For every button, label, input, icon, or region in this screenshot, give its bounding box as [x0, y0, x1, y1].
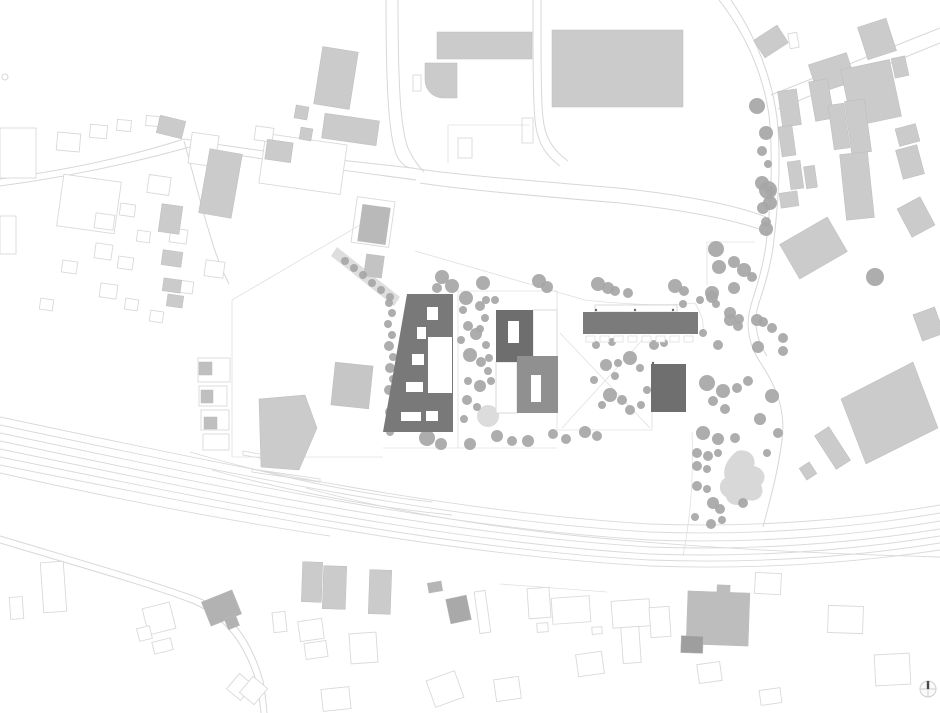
site-marker-dot: [672, 309, 674, 311]
tree: [617, 395, 627, 405]
tree: [377, 286, 385, 294]
tree: [749, 98, 765, 114]
roof-opening: [401, 412, 421, 421]
tree: [692, 448, 702, 458]
tree: [643, 386, 651, 394]
roof-opening: [426, 411, 438, 421]
context-building-outline: [537, 623, 549, 633]
context-building: [358, 204, 391, 245]
tree: [757, 202, 769, 214]
tree: [636, 364, 644, 372]
tree: [341, 257, 349, 265]
tree: [419, 430, 435, 446]
context-building-outline: [117, 119, 132, 131]
tree: [705, 286, 719, 300]
tree: [757, 146, 767, 156]
tree: [778, 346, 788, 356]
tree: [484, 367, 492, 375]
context-building-outline: [117, 256, 134, 270]
context-building: [166, 294, 184, 308]
tree: [432, 283, 442, 293]
tree: [696, 426, 710, 440]
context-building-outline: [94, 213, 115, 230]
site-marker-dot: [652, 362, 654, 364]
context-building-outline: [621, 626, 641, 663]
balcony-outline: [656, 336, 665, 342]
tree: [457, 336, 465, 344]
tree: [761, 217, 771, 227]
context-building: [437, 32, 532, 59]
tree: [481, 314, 489, 322]
site-plan: [0, 0, 940, 713]
tree: [482, 296, 490, 304]
context-building-outline: [56, 132, 80, 152]
tree: [679, 286, 689, 296]
tree: [778, 333, 788, 343]
context-building-outline: [203, 434, 229, 450]
context-building-outline: [147, 175, 171, 196]
context-building-outline: [149, 310, 163, 323]
context-building-outline: [304, 641, 328, 660]
tree: [773, 428, 783, 438]
tree: [623, 288, 633, 298]
tree: [692, 481, 702, 491]
tree: [579, 426, 591, 438]
tree: [592, 431, 602, 441]
context-building-outline: [494, 676, 522, 701]
context-building-outline: [61, 260, 78, 274]
project-building-east-bar: [583, 312, 698, 334]
tree: [703, 465, 711, 473]
context-building-outline: [611, 599, 651, 629]
context-building-outline: [649, 606, 671, 637]
tree: [541, 281, 553, 293]
tree: [699, 329, 707, 337]
context-building: [322, 566, 346, 610]
tree: [720, 404, 730, 414]
balcony-outline: [642, 336, 651, 342]
tree: [384, 320, 392, 328]
context-building: [204, 417, 217, 429]
context-building: [301, 562, 322, 603]
context-building: [158, 204, 183, 235]
tree: [733, 321, 743, 331]
tree: [463, 348, 477, 362]
tree: [473, 403, 481, 411]
balcony-outline: [586, 336, 595, 342]
tree: [747, 272, 757, 282]
tree: [470, 328, 482, 340]
context-building-outline: [527, 587, 551, 618]
canopy-outline: [595, 305, 677, 312]
tree: [491, 296, 499, 304]
context-building-outline: [788, 32, 799, 48]
tree: [765, 186, 775, 196]
context-building: [717, 585, 730, 594]
balcony-outline: [600, 336, 609, 342]
tree: [611, 372, 619, 380]
tree: [598, 401, 606, 409]
tree: [623, 351, 637, 365]
tree: [603, 388, 617, 402]
tree: [712, 433, 724, 445]
tree: [716, 384, 730, 398]
project-south-wing-outline: [496, 362, 517, 413]
tree: [718, 516, 726, 524]
roof-opening: [412, 354, 424, 365]
tree: [764, 160, 772, 168]
context-building: [201, 390, 213, 403]
context-building-outline: [349, 632, 378, 664]
tree: [703, 451, 713, 461]
context-building-outline: [99, 283, 118, 299]
tree: [476, 357, 486, 367]
tree: [368, 279, 376, 287]
site-marker-dot: [634, 309, 636, 311]
tree: [765, 389, 779, 403]
context-building-outline: [9, 597, 24, 620]
courtyard-opening: [508, 321, 519, 343]
balcony-outline: [670, 336, 679, 342]
tree: [385, 299, 393, 307]
tree: [754, 413, 766, 425]
tree: [708, 396, 718, 406]
context-building-outline: [94, 243, 113, 260]
tree: [482, 341, 490, 349]
tree: [464, 438, 476, 450]
tree: [435, 438, 447, 450]
context-building-outline: [40, 561, 66, 612]
tree: [712, 260, 726, 274]
site-marker-dot: [595, 309, 597, 311]
tree: [763, 449, 771, 457]
tree: [561, 434, 571, 444]
tree: [728, 282, 740, 294]
tree: [350, 264, 358, 272]
context-building: [294, 105, 309, 120]
roof-opening: [427, 307, 438, 320]
tree: [384, 341, 394, 351]
tree: [491, 430, 503, 442]
tree: [476, 276, 490, 290]
balcony-outline: [614, 336, 623, 342]
tree: [610, 286, 620, 296]
tree: [637, 401, 645, 409]
tree: [445, 279, 459, 293]
context-building-outline: [204, 260, 225, 278]
tree: [388, 331, 396, 339]
context-building-outline: [874, 653, 911, 686]
tree: [866, 268, 884, 286]
tree: [600, 359, 612, 371]
context-building-outline: [458, 138, 472, 158]
tree: [507, 436, 517, 446]
context-building: [199, 362, 212, 375]
context-building-outline: [89, 124, 107, 138]
tree: [590, 376, 598, 384]
tree: [625, 405, 635, 415]
tree: [714, 449, 722, 457]
tree: [715, 504, 725, 514]
context-building: [265, 139, 294, 162]
context-building-outline: [413, 75, 421, 91]
tree: [459, 306, 467, 314]
balcony-outline: [628, 336, 637, 342]
tree: [460, 415, 468, 423]
context-building: [427, 581, 443, 593]
tree: [692, 461, 702, 471]
courtyard-opening: [531, 375, 541, 402]
context-building-outline: [119, 203, 136, 217]
tree: [464, 377, 472, 385]
tree: [487, 377, 495, 385]
context-building-outline: [137, 626, 153, 642]
tree: [474, 380, 486, 392]
tree: [738, 498, 748, 508]
project-north-wing-outline: [533, 310, 557, 362]
tree: [743, 376, 753, 386]
tree: [732, 383, 742, 393]
context-building: [161, 250, 183, 268]
roof-opening: [406, 382, 423, 392]
tree: [522, 435, 534, 447]
tree: [730, 433, 740, 443]
context-building-outline: [551, 596, 591, 625]
tree: [548, 429, 558, 439]
site-plan-canvas: [0, 0, 940, 713]
context-building: [368, 570, 392, 615]
tree: [388, 309, 396, 317]
compass-layer: [920, 681, 936, 697]
tree: [696, 296, 704, 304]
tree: [614, 359, 622, 367]
tree: [485, 354, 493, 362]
context-building-outline: [576, 651, 605, 676]
tree: [708, 241, 724, 257]
tree: [703, 485, 711, 493]
context-building-outline: [697, 661, 722, 683]
context-building-outline: [592, 627, 602, 635]
balcony-outline: [684, 336, 693, 342]
tree: [767, 323, 777, 333]
tree: [713, 340, 723, 350]
context-building-outline: [136, 230, 150, 243]
context-building-outline: [321, 687, 351, 712]
tree: [463, 321, 473, 331]
context-building: [331, 362, 373, 409]
context-building-outline: [298, 618, 325, 641]
context-building-outline: [124, 298, 138, 311]
tree: [359, 271, 367, 279]
tree: [462, 395, 472, 405]
project-building-east-square: [651, 364, 686, 412]
tree: [385, 363, 395, 373]
context-building-outline: [0, 128, 36, 178]
tree: [706, 519, 716, 529]
context-building-outline: [0, 216, 16, 254]
context-building-outline: [522, 118, 533, 143]
roof-opening: [428, 337, 452, 393]
tree: [712, 300, 720, 308]
context-building: [779, 191, 799, 208]
tree: [459, 291, 473, 305]
tree: [752, 341, 764, 353]
context-building: [681, 636, 704, 654]
tree: [758, 317, 768, 327]
context-building-outline: [146, 115, 160, 126]
tree: [691, 513, 699, 521]
context-building-outline: [759, 688, 782, 706]
context-building-outline: [828, 605, 864, 633]
context-building-outline: [272, 611, 287, 632]
context-building: [162, 278, 182, 293]
tree: [699, 375, 715, 391]
tree: [759, 126, 773, 140]
tree: [679, 300, 687, 308]
context-building-outline: [39, 298, 53, 311]
roof-opening: [417, 327, 426, 339]
context-building: [552, 30, 683, 107]
context-building: [299, 127, 313, 141]
context-building-outline: [754, 572, 781, 594]
